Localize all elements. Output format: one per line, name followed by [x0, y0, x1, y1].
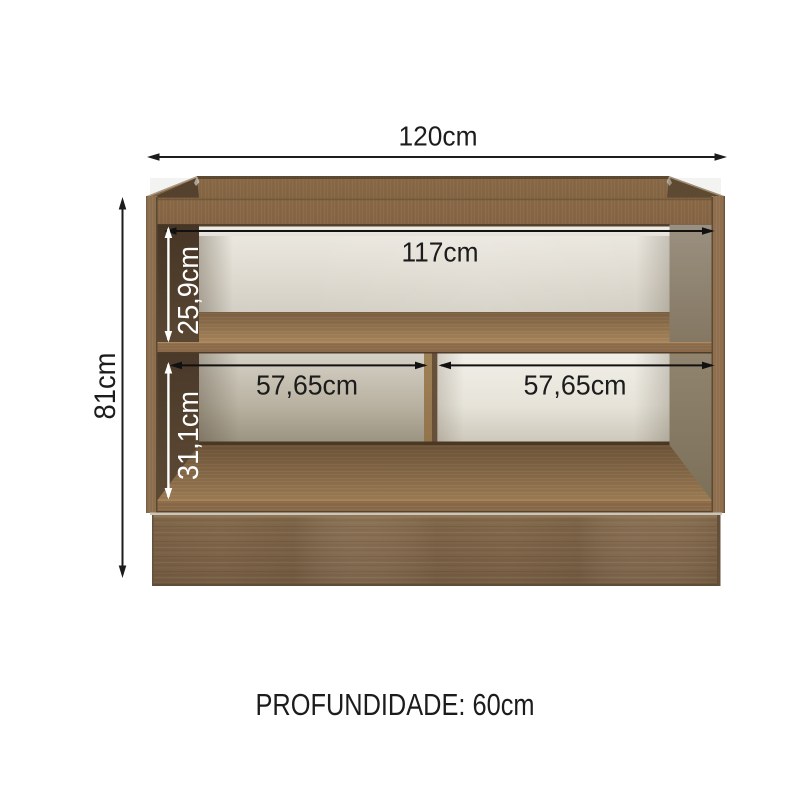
svg-text:25,9cm: 25,9cm — [173, 246, 205, 335]
svg-text:57,65cm: 57,65cm — [256, 370, 358, 401]
svg-text:81cm: 81cm — [89, 353, 122, 420]
svg-text:120cm: 120cm — [399, 121, 478, 152]
svg-text:31,1cm: 31,1cm — [173, 391, 205, 480]
svg-text:57,65cm: 57,65cm — [524, 370, 627, 401]
svg-text:117cm: 117cm — [402, 237, 479, 268]
svg-text:PROFUNDIDADE: 60cm: PROFUNDIDADE: 60cm — [256, 687, 535, 722]
